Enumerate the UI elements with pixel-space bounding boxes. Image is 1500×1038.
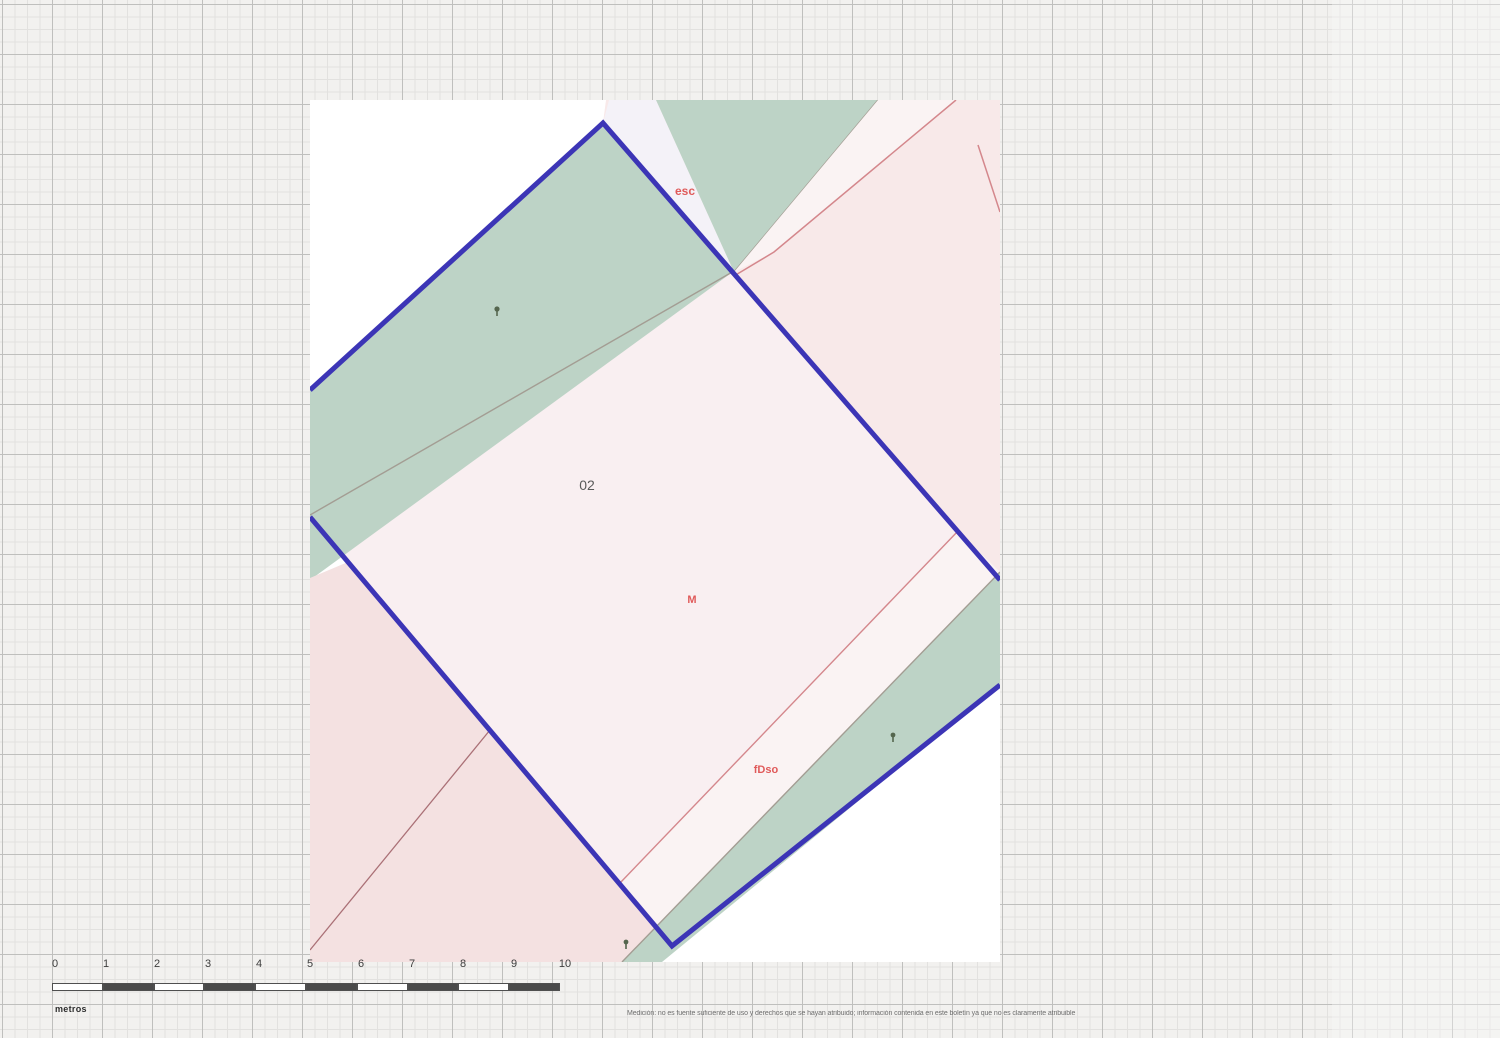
scale-tick: 5 — [307, 958, 313, 970]
scale-tick: 0 — [52, 958, 58, 970]
scale-bar-segment — [306, 983, 357, 991]
road-label: esc — [675, 184, 695, 198]
scale-bar-segment — [458, 983, 509, 991]
scale-bar-segment — [408, 983, 459, 991]
parcel-map: esc 02 M fDso — [310, 100, 1000, 962]
scale-tick: 2 — [154, 958, 160, 970]
scale-bar-segment — [509, 983, 560, 991]
scale-bar-segment — [204, 983, 255, 991]
scale-tick: 6 — [358, 958, 364, 970]
plot-label: fDso — [754, 764, 779, 776]
scale-bar-segment — [255, 983, 306, 991]
scale-tick: 3 — [205, 958, 211, 970]
scale-bar-segment — [154, 983, 205, 991]
scale-bar — [0, 983, 640, 993]
scale-bar-segment — [103, 983, 154, 991]
scale-unit-label: metros — [55, 1004, 87, 1014]
footer-disclaimer: Medición: no es fuente suficiente de uso… — [627, 1010, 1142, 1022]
cadastral-map-page: esc 02 M fDso 012345678910 metros Medici… — [0, 0, 1500, 1038]
scale-tick: 4 — [256, 958, 262, 970]
parcel-number-label: 02 — [579, 477, 595, 493]
page-edge-fade — [1332, 0, 1500, 1038]
scale-bar-segment — [357, 983, 408, 991]
scale-bar-segment — [52, 983, 103, 991]
scale-tick: 10 — [559, 958, 571, 970]
subparcel-label: M — [687, 594, 696, 606]
scale-tick: 8 — [460, 958, 466, 970]
scale-tick: 7 — [409, 958, 415, 970]
scale-tick: 9 — [511, 958, 517, 970]
scale-bar-ticks: 012345678910 — [0, 958, 640, 974]
scale-tick: 1 — [103, 958, 109, 970]
map-sheet: esc 02 M fDso — [310, 100, 1000, 962]
